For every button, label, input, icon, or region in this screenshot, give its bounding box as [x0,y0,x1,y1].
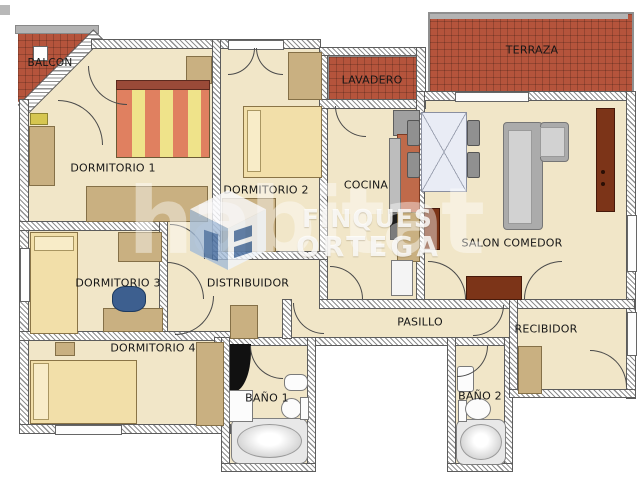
label-distribuidor: DISTRIBUIDOR [207,277,289,290]
dorm4-small-desk [55,342,75,356]
label-dormitorio3: DORMITORIO 3 [75,277,160,290]
dorm1-double-bed [116,80,210,158]
bano1-bathtub-basin [237,424,302,458]
dorm3-office-chair [112,286,146,312]
label-dormitorio4: DORMITORIO 4 [110,342,195,355]
terraza-top-band [430,14,628,19]
label-pasillo: PASILLO [397,316,443,329]
distribuidor-wardrobe [230,305,258,339]
window-salon-right [627,215,637,272]
wall-top-dorm [92,40,320,48]
label-bano1: BAÑO 1 [245,392,289,405]
salon-tall-unit [596,108,615,212]
salon-chair-3 [467,120,480,146]
window-dorm3-left [20,248,30,302]
watermark-house-logo [190,190,266,270]
dorm4-wardrobe [196,342,224,426]
opening-salon-terraza [455,92,529,102]
salon-chair-4 [467,152,480,178]
bano1-bidet [284,374,308,391]
label-bano2: BAÑO 2 [458,390,502,403]
salon-dining-table [421,112,467,192]
wall-dorm4-bottom [20,425,230,433]
wall-bano1-right [308,338,315,471]
salon-left-unit [424,208,440,250]
label-recibidor: RECIBIDOR [515,323,578,336]
dorm4-bed-pillow [33,363,49,420]
cocina-sink-run [389,138,401,214]
cocina-dishwasher [391,260,413,296]
salon-unit-knob-2 [601,182,605,186]
salon-unit-knob-1 [601,170,605,174]
label-lavadero: LAVADERO [342,74,403,87]
salon-chair-1 [407,120,420,146]
wall-connector-stub [283,300,291,338]
bano2-bathtub-basin [460,424,502,460]
dorm3-wardrobe [118,232,162,262]
dorm2-bed-pillow [247,110,261,172]
salon-chair-2 [407,152,420,178]
wall-bano1-bottom [222,464,315,471]
label-balcon: BALCON [28,57,73,69]
label-salon: SALON COMEDOR [462,237,563,250]
floor-plan: BALCON DORMITORIO 1 DORMITORIO 2 DORMITO… [0,0,640,480]
wall-pasillo-bottom [215,338,515,345]
salon-sideboard [466,276,522,300]
cocina-cabinet [397,212,420,262]
wall-bano2-bottom [448,464,512,471]
recibidor-wardrobe [518,346,542,394]
dorm1-bed-headboard [116,80,210,90]
window-dorm4-bottom [55,425,122,435]
label-terraza: TERRAZA [506,44,559,57]
wall-bano2-left [448,338,455,471]
dorm1-cabinet [29,126,55,186]
dorm1-shelf [30,113,48,125]
dorm3-bed-pillow [34,236,74,251]
dorm2-wardrobe-top [288,52,322,100]
corner-mark [0,5,10,15]
label-cocina: COCINA [344,179,388,192]
salon-sofa-cushions [508,130,532,224]
wall-recibidor-left [510,300,517,397]
window-recibidor-right [627,312,637,356]
label-dormitorio1: DORMITORIO 1 [70,162,155,175]
wall-dorm1-bottom [20,222,167,230]
salon-sofa-chaise-cushion [540,127,565,157]
bano1-toilet-tank [300,397,309,420]
wall-lavadero-top [320,48,424,55]
balcon-top-band [16,26,98,33]
house-logo-door [204,229,218,261]
